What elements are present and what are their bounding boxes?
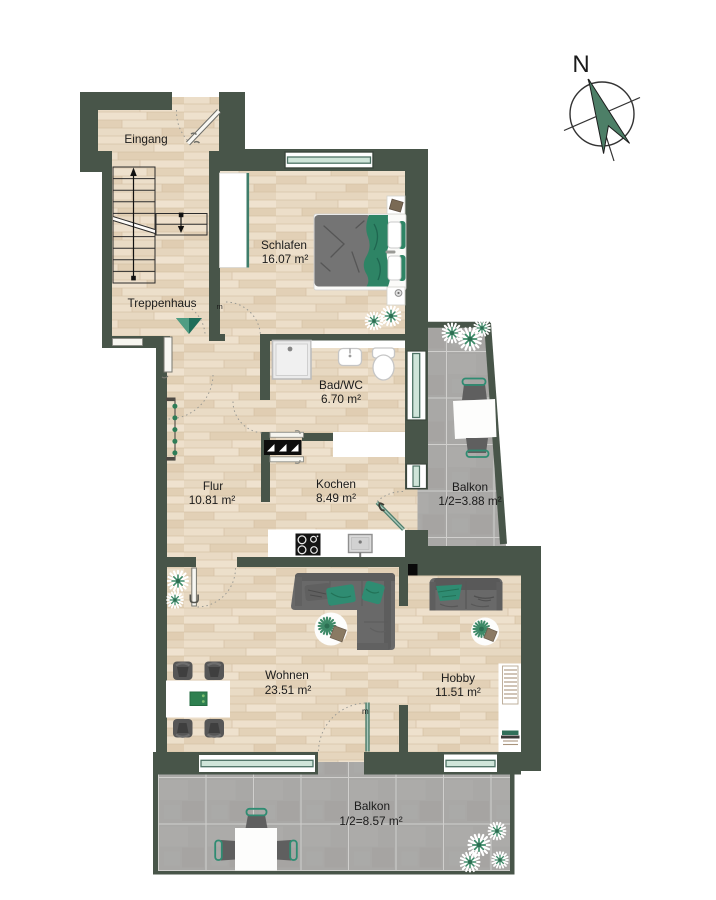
svg-text:Flur: Flur — [203, 479, 223, 493]
svg-text:23.51 m²: 23.51 m² — [265, 683, 312, 697]
svg-text:1/2=3.88 m²: 1/2=3.88 m² — [438, 494, 501, 508]
svg-text:m: m — [217, 302, 223, 311]
svg-text:Kochen: Kochen — [316, 477, 356, 491]
svg-text:1/2=8.57 m²: 1/2=8.57 m² — [339, 814, 402, 828]
svg-text:16.07 m²: 16.07 m² — [262, 252, 309, 266]
svg-text:Balkon: Balkon — [452, 480, 488, 494]
svg-text:10.81 m²: 10.81 m² — [189, 493, 236, 507]
svg-text:Bad/WC: Bad/WC — [319, 378, 363, 392]
svg-text:11.51 m²: 11.51 m² — [435, 685, 481, 699]
svg-text:N: N — [572, 51, 589, 78]
svg-text:Schlafen: Schlafen — [261, 238, 307, 252]
svg-text:Treppenhaus: Treppenhaus — [127, 296, 196, 310]
svg-text:m: m — [362, 707, 369, 716]
svg-text:Hobby: Hobby — [441, 671, 475, 685]
svg-text:Wohnen: Wohnen — [265, 668, 309, 682]
svg-text:8.49 m²: 8.49 m² — [316, 491, 356, 505]
svg-text:6.70 m²: 6.70 m² — [321, 392, 361, 406]
svg-text:Eingang: Eingang — [124, 132, 167, 146]
svg-text:Balkon: Balkon — [354, 799, 390, 813]
